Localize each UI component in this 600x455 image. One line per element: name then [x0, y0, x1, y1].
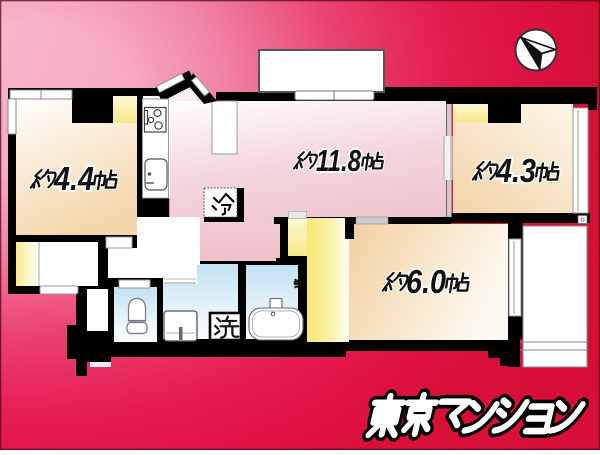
svg-text:4.4: 4.4: [53, 160, 94, 197]
svg-text:11.8: 11.8: [316, 143, 362, 178]
svg-text:6.0: 6.0: [406, 263, 447, 300]
svg-text:4.3: 4.3: [495, 152, 536, 189]
